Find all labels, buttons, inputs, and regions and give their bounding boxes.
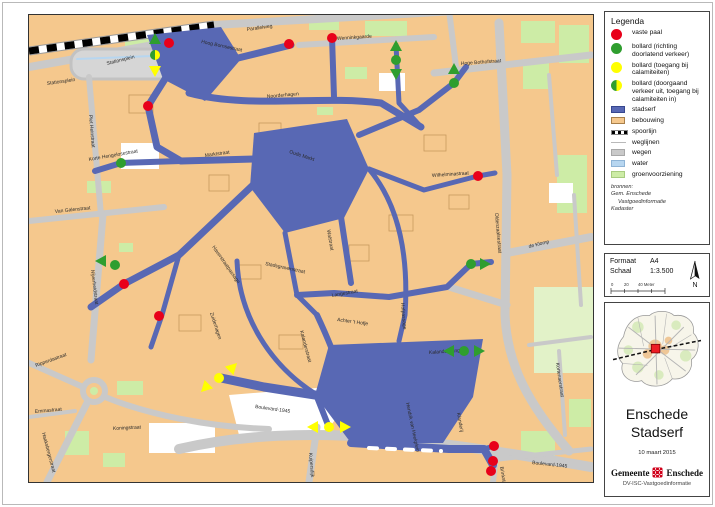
legend-item-label: bollard (toegang bij calamiteiten)	[632, 62, 705, 78]
legend-item-label: bollard (doorgaand verkeer uit, toegang …	[632, 80, 705, 103]
svg-text:0: 0	[611, 282, 614, 287]
legend-item: spoorlijn	[611, 128, 705, 136]
source-line: Gem. Enschede	[611, 191, 705, 199]
legend-items: vaste paalbollard (richting doorlatend v…	[611, 29, 705, 179]
legend-item: bollard (doorgaand verkeer uit, toegang …	[611, 80, 705, 103]
vaste-paal	[164, 38, 174, 48]
legend-item-label: bollard (richting doorlatend verkeer)	[632, 43, 705, 59]
org-name-left: Gemeente	[611, 468, 649, 478]
bollard-green	[449, 78, 459, 88]
vaste-paal	[119, 279, 129, 289]
legend-item: stadserf	[611, 106, 705, 114]
bollard-green	[391, 55, 401, 65]
legend-item-label: water	[632, 160, 648, 168]
bollard-green	[466, 259, 476, 269]
legend-item-label: groenvoorziening	[632, 171, 683, 179]
vaste-paal	[473, 171, 483, 181]
legend-item-label: wegen	[632, 149, 651, 157]
overview-map	[609, 308, 705, 394]
bollard-yellow	[214, 373, 224, 383]
sources-block: bronnen: Gem. Enschede Vastgoedinformati…	[611, 184, 705, 214]
svg-text:40 Meter: 40 Meter	[638, 282, 655, 287]
legend-item: weglijnen	[611, 139, 705, 147]
svg-text:N: N	[692, 282, 697, 289]
rect-swatch	[611, 160, 629, 167]
legend-item-label: bebouwing	[632, 117, 664, 125]
vaste-paal	[488, 456, 498, 466]
dot-swatch	[611, 29, 629, 40]
scale-bar: 0 20 40 Meter	[610, 281, 672, 295]
format-label: Formaat	[610, 258, 650, 265]
legend-item-label: weglijnen	[632, 139, 660, 147]
line-swatch	[611, 139, 629, 143]
sources-heading: bronnen:	[611, 184, 705, 192]
vaste-paal	[284, 39, 294, 49]
legend-item-label: vaste paal	[632, 29, 662, 37]
map-sheet: ParallelwegStationspleinStationspleinPie…	[0, 0, 715, 507]
map-date: 10 maart 2015	[608, 450, 706, 456]
rect-swatch	[611, 106, 629, 113]
map-extent-indicator	[651, 344, 660, 353]
bollard-green	[459, 346, 469, 356]
dot-swatch	[611, 62, 629, 73]
rail-swatch	[611, 128, 629, 135]
enschede-emblem-icon	[652, 467, 663, 478]
vaste-paal	[143, 101, 153, 111]
legend-item: wegen	[611, 149, 705, 157]
roundabout-green	[90, 387, 98, 395]
legend-item: groenvoorziening	[611, 171, 705, 179]
vaste-paal	[154, 311, 164, 321]
department-label: DV-ISC-Vastgoedinformatie	[608, 481, 706, 487]
rect-swatch	[611, 149, 629, 156]
vaste-paal	[327, 33, 337, 43]
vaste-paal	[486, 466, 496, 476]
legend-item: vaste paal	[611, 29, 705, 40]
rect-swatch	[611, 171, 629, 178]
source-line: Kadaster	[611, 206, 705, 214]
svg-text:20: 20	[624, 282, 629, 287]
bollard-green	[110, 260, 120, 270]
scale-label: Schaal	[610, 268, 650, 275]
legend-item: bebouwing	[611, 117, 705, 125]
legend-item: bollard (richting doorlatend verkeer)	[611, 43, 705, 59]
north-arrow: N	[687, 259, 703, 289]
legend-item-label: stadserf	[632, 106, 655, 114]
city-map: ParallelwegStationspleinStationspleinPie…	[28, 14, 594, 483]
organisation-logo: Gemeente Enschede	[608, 467, 706, 478]
bollard-green	[116, 158, 126, 168]
source-line: Vastgoedinformatie	[618, 199, 705, 207]
legend-item: water	[611, 160, 705, 168]
half-dot-swatch	[611, 80, 629, 91]
rect-swatch	[611, 117, 629, 124]
vaste-paal	[489, 441, 499, 451]
info-panel: Enschede Stadserf 10 maart 2015 Gemeente…	[604, 302, 710, 497]
bollard-yellow	[324, 422, 334, 432]
map-title: Enschede Stadserf	[608, 406, 706, 441]
format-panel: Formaat A4 Schaal 1:3.500 0 20 40 Meter …	[604, 253, 710, 297]
org-name-right: Enschede	[666, 468, 703, 478]
legend-item-label: spoorlijn	[632, 128, 657, 136]
legend-item: bollard (toegang bij calamiteiten)	[611, 62, 705, 78]
legend-title: Legenda	[611, 16, 705, 26]
legend-panel: Legenda vaste paalbollard (richting door…	[604, 11, 710, 245]
dot-swatch	[611, 43, 629, 54]
